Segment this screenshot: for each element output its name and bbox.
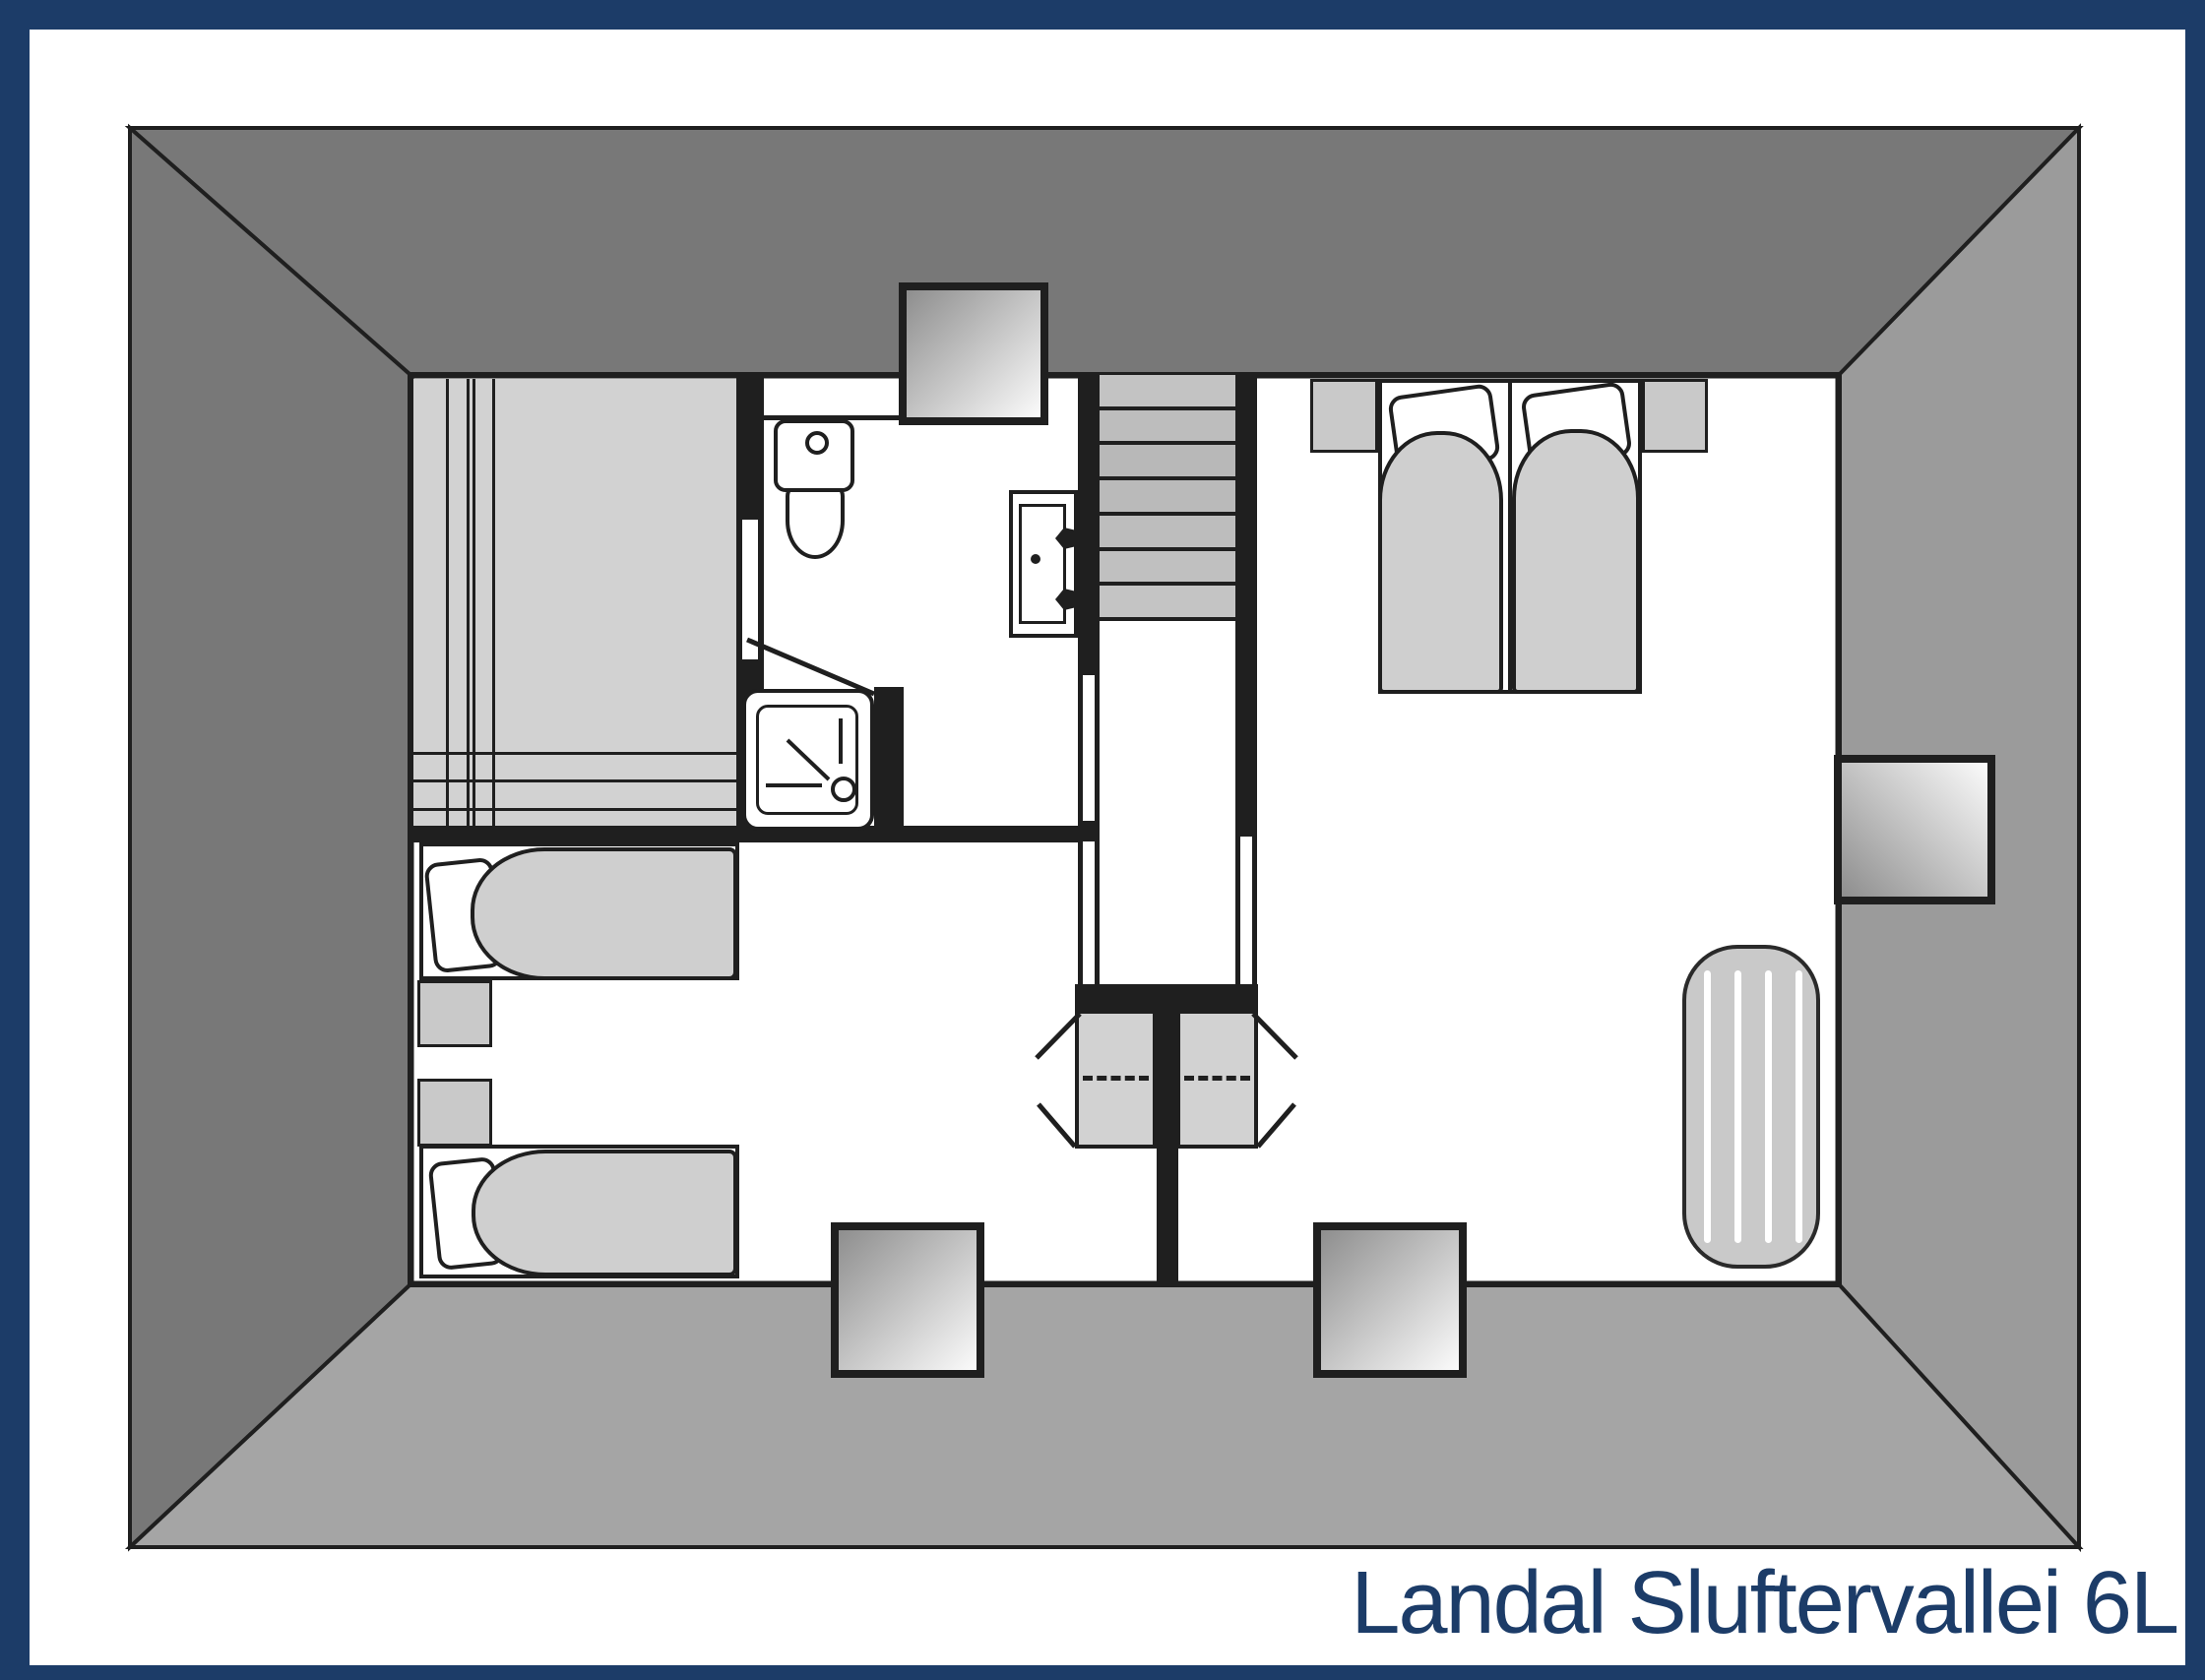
storage-room — [413, 379, 736, 826]
stair-step — [1100, 410, 1235, 446]
closet-rail-icon — [1184, 1076, 1250, 1081]
closet-door-swing-line — [1037, 1014, 1080, 1058]
closet-right — [1176, 1010, 1258, 1149]
stair-step — [1100, 445, 1235, 480]
closet-door-swing-line — [1258, 1104, 1294, 1147]
stair-step — [1100, 480, 1235, 516]
shelf-line-icon — [492, 379, 495, 826]
frame-border-top — [0, 0, 2205, 30]
roof-slope-top — [130, 128, 2079, 374]
skylight-bottom-left — [831, 1222, 984, 1378]
nightstand — [417, 1079, 492, 1147]
mattress-stripe-icon — [1765, 970, 1772, 1243]
floorplan-image: Landal Sluftervallei 6L — [0, 0, 2205, 1680]
shelf-line-icon — [467, 379, 470, 826]
frame-border-bottom — [0, 1665, 2205, 1680]
bathroom-storage-door-gap — [742, 520, 758, 659]
bed-duvet — [1378, 431, 1503, 694]
skylight-top — [899, 282, 1048, 425]
bed-duvet — [471, 847, 737, 980]
staircase — [1100, 375, 1235, 621]
sink-basin — [1019, 504, 1066, 624]
sink-drain — [1031, 554, 1040, 564]
mattress-stripe-icon — [1734, 970, 1741, 1243]
frame-border-left — [0, 0, 30, 1680]
closet-door-swing-line — [1253, 1014, 1296, 1058]
stair-step — [1100, 551, 1235, 587]
right-bedroom-door-gap — [1240, 837, 1252, 984]
stair-step — [1100, 586, 1235, 621]
roof-slope-left — [130, 128, 409, 1547]
frame-border-right — [2185, 0, 2205, 1680]
toilet-tank — [774, 419, 854, 492]
shelf-line-icon — [413, 779, 736, 782]
plan-title: Landal Sluftervallei 6L — [1351, 1553, 2177, 1654]
wall-landing-bottom — [1075, 984, 1258, 1011]
wall-bedroom-divider — [1157, 1149, 1178, 1286]
nightstand — [417, 980, 492, 1047]
right-wall-window — [1834, 755, 1995, 904]
closet-rail-icon — [1083, 1076, 1149, 1081]
toilet-flush-button — [805, 431, 829, 455]
bed-duvet — [472, 1150, 737, 1276]
bathroom-landing-door-gap — [1083, 675, 1095, 821]
shower-tray-inner — [756, 705, 858, 815]
mattress-stripe-icon — [1795, 970, 1802, 1243]
nightstand — [1310, 379, 1378, 453]
air-mattress — [1682, 945, 1820, 1269]
stair-step — [1100, 516, 1235, 551]
toilet-bowl — [786, 482, 845, 559]
shelf-line-icon — [472, 379, 475, 826]
skylight-bottom-right — [1313, 1222, 1467, 1378]
shower-screen-line — [747, 640, 874, 694]
roof-slope-bottom — [130, 1285, 2079, 1547]
closet-door-swing-line — [1039, 1104, 1075, 1147]
shelf-line-icon — [413, 752, 736, 755]
bed-duvet — [1512, 429, 1640, 694]
wall-shower-stub — [874, 687, 904, 842]
closet-divider-wall — [1157, 1010, 1176, 1149]
shelf-line-icon — [413, 808, 736, 811]
stair-step — [1100, 375, 1235, 410]
shelf-line-icon — [446, 379, 449, 826]
mattress-stripe-icon — [1704, 970, 1711, 1243]
left-bedroom-door-gap — [1083, 841, 1095, 984]
closet-left — [1075, 1010, 1157, 1149]
nightstand — [1642, 379, 1708, 453]
